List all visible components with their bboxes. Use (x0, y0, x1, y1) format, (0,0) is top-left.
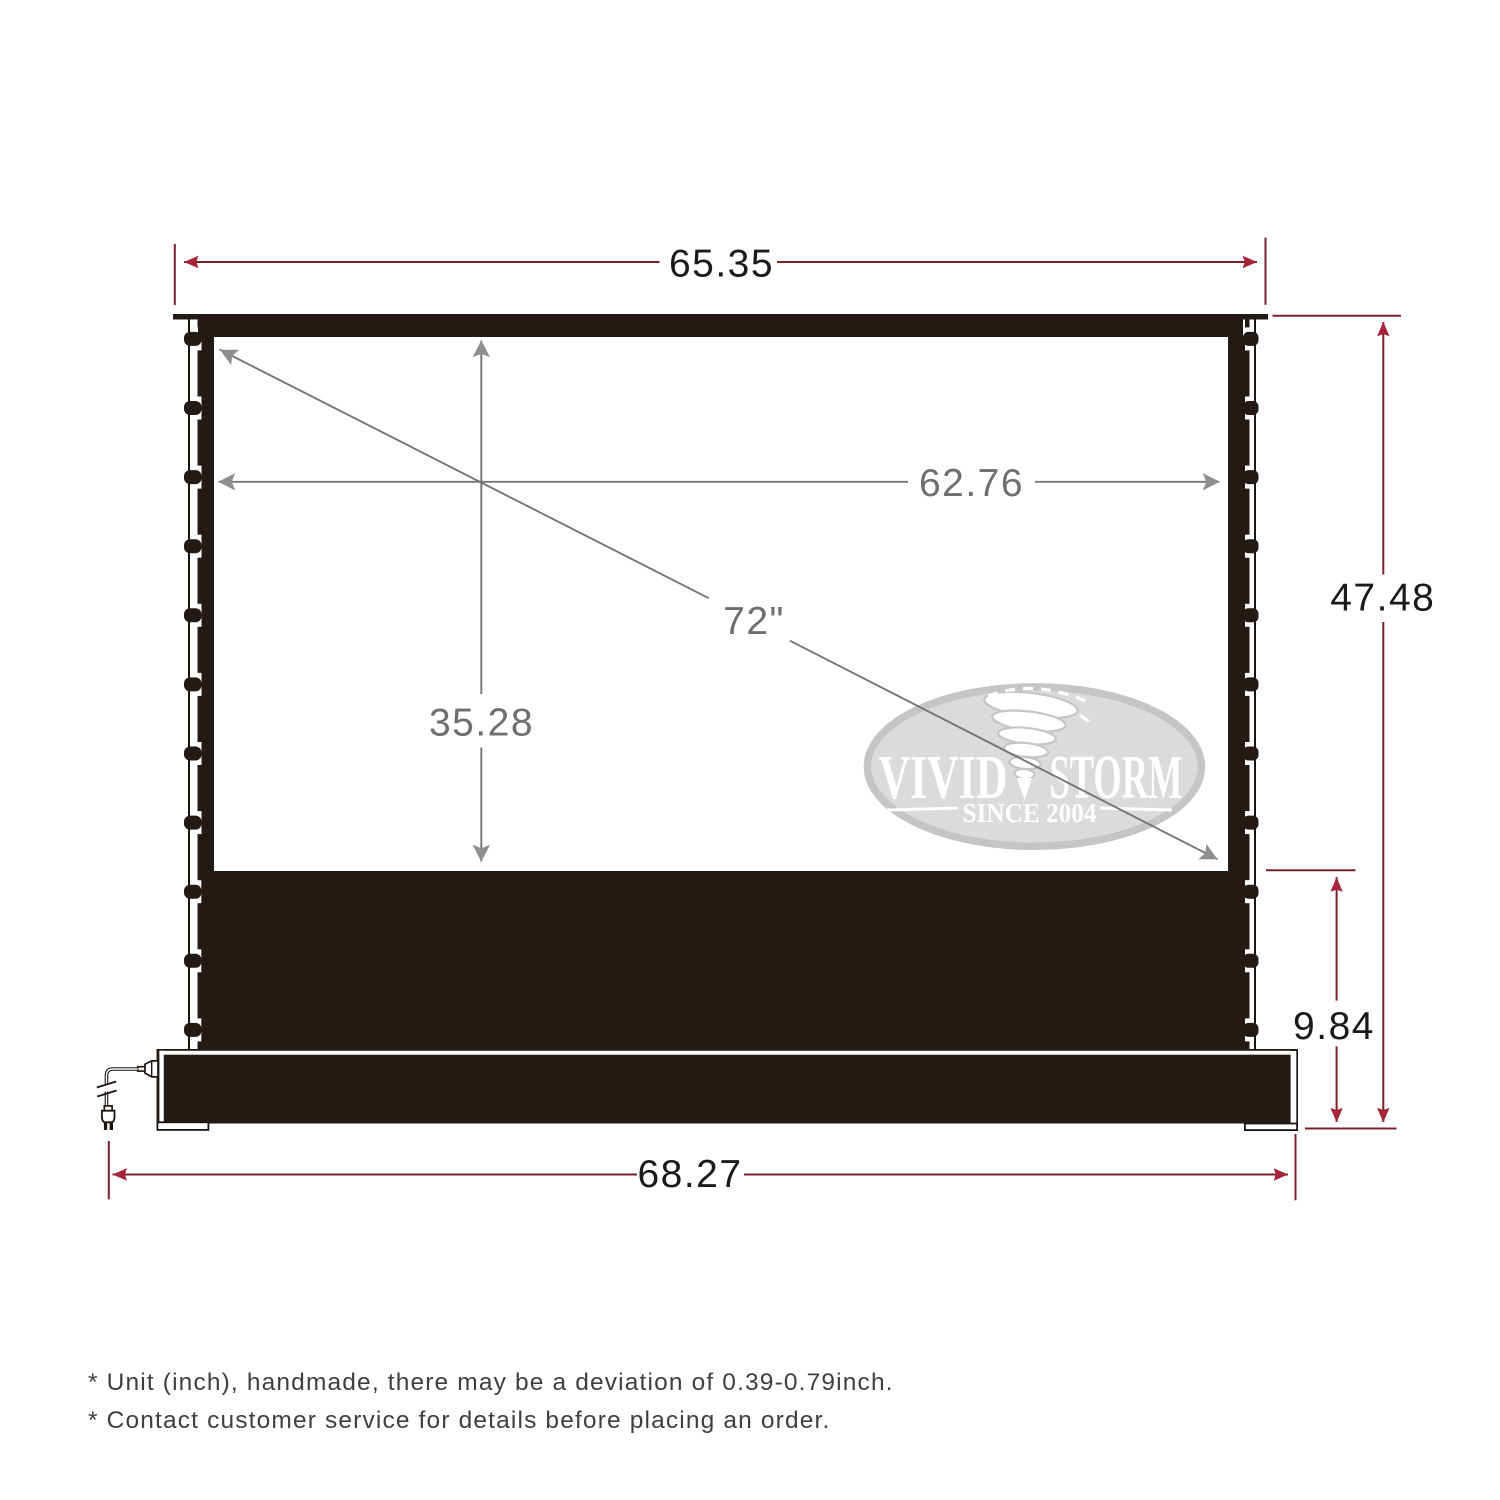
svg-text:9.84: 9.84 (1293, 1005, 1375, 1048)
svg-text:35.28: 35.28 (429, 701, 534, 744)
svg-text:* Contact customer service for: * Contact customer service for details b… (88, 1407, 830, 1434)
svg-text:72": 72" (723, 600, 785, 643)
svg-text:62.76: 62.76 (919, 462, 1024, 505)
svg-text:47.48: 47.48 (1330, 576, 1435, 619)
svg-text:68.27: 68.27 (637, 1153, 742, 1196)
svg-text:SINCE 2004: SINCE 2004 (963, 797, 1097, 828)
svg-text:* Unit (inch), handmade, there: * Unit (inch), handmade, there may be a … (88, 1369, 894, 1396)
svg-text:65.35: 65.35 (669, 242, 774, 285)
